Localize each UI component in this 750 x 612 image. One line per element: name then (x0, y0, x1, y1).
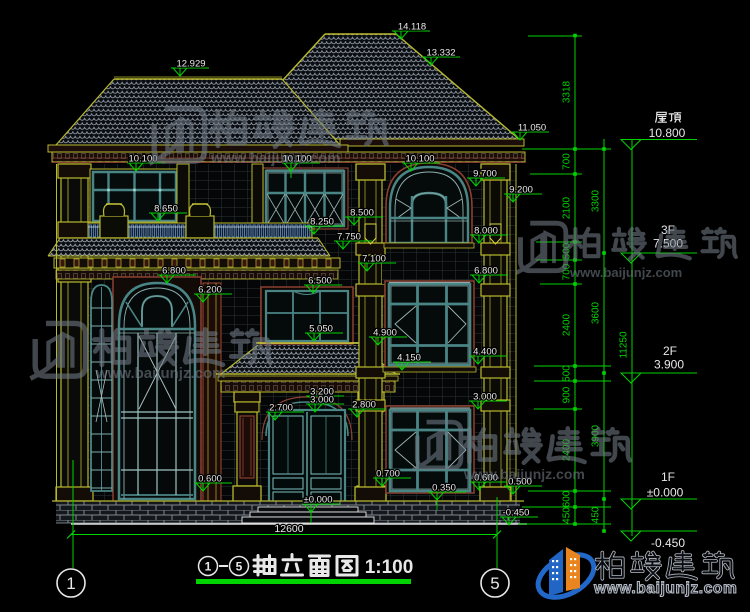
svg-text:450: 450 (562, 507, 573, 524)
svg-text:7.750: 7.750 (337, 232, 361, 243)
svg-text:900: 900 (562, 386, 573, 403)
svg-text:700: 700 (562, 153, 573, 170)
svg-text:11.050: 11.050 (518, 123, 546, 134)
svg-text:9.200: 9.200 (509, 185, 533, 196)
svg-text:6.200: 6.200 (198, 285, 222, 296)
svg-text:2100: 2100 (562, 196, 573, 219)
svg-text:3.900: 3.900 (654, 358, 684, 372)
svg-text:11250: 11250 (619, 331, 630, 359)
svg-text:±0.000: ±0.000 (304, 495, 333, 506)
svg-text:500: 500 (562, 365, 573, 382)
svg-text:2.700: 2.700 (269, 403, 293, 414)
svg-text:12600: 12600 (274, 523, 303, 535)
svg-text:3300: 3300 (591, 189, 602, 212)
svg-text:-0.450: -0.450 (651, 536, 685, 550)
svg-text:8.500: 8.500 (350, 208, 374, 219)
svg-text:3600: 3600 (591, 301, 602, 324)
svg-text:1: 1 (66, 574, 75, 593)
svg-text:0.600: 0.600 (198, 474, 222, 485)
svg-text:1F: 1F (661, 470, 675, 484)
svg-text:600: 600 (562, 490, 573, 507)
svg-text:2F: 2F (663, 344, 677, 358)
svg-text:www.baijunjz.com: www.baijunjz.com (569, 265, 682, 280)
svg-text:0.700: 0.700 (376, 469, 400, 480)
svg-text:4.400: 4.400 (473, 347, 497, 358)
svg-text:6.800: 6.800 (474, 266, 498, 277)
svg-text:www.baijunjz.com: www.baijunjz.com (463, 466, 585, 482)
svg-text:8.650: 8.650 (154, 204, 178, 215)
svg-text:9.700: 9.700 (473, 169, 497, 180)
svg-text:13.332: 13.332 (426, 48, 455, 59)
svg-text:5.050: 5.050 (309, 324, 333, 335)
svg-text:5: 5 (236, 560, 243, 574)
svg-text:6.800: 6.800 (162, 266, 186, 277)
svg-text:6.500: 6.500 (308, 276, 332, 287)
svg-text:3318: 3318 (562, 80, 573, 103)
svg-text:1:100: 1:100 (365, 557, 414, 578)
svg-text:450: 450 (591, 506, 602, 523)
svg-text:2.800: 2.800 (352, 400, 376, 411)
svg-text:5: 5 (490, 574, 499, 593)
svg-text:10.100: 10.100 (405, 154, 434, 165)
svg-text:www.baijunjz.com: www.baijunjz.com (210, 150, 340, 167)
svg-text:8.250: 8.250 (310, 217, 334, 228)
svg-text:2400: 2400 (562, 313, 573, 336)
svg-text:1: 1 (205, 560, 212, 574)
svg-text:4.150: 4.150 (397, 353, 421, 364)
svg-text:4.900: 4.900 (373, 328, 397, 339)
svg-text:12.929: 12.929 (176, 59, 205, 70)
svg-text:3.000: 3.000 (473, 392, 497, 403)
svg-text:0.350: 0.350 (432, 483, 456, 494)
svg-text:www.baijunjz.com: www.baijunjz.com (593, 580, 737, 597)
svg-text:±0.000: ±0.000 (647, 486, 684, 500)
svg-text:8.000: 8.000 (474, 226, 498, 237)
svg-text:3.000: 3.000 (310, 395, 334, 406)
svg-text:-0.450: -0.450 (503, 508, 530, 519)
svg-text:7.100: 7.100 (362, 254, 386, 265)
svg-text:14.118: 14.118 (398, 22, 426, 33)
svg-text:www.baijunjz.com: www.baijunjz.com (95, 365, 225, 382)
svg-text:10.800: 10.800 (649, 126, 686, 140)
